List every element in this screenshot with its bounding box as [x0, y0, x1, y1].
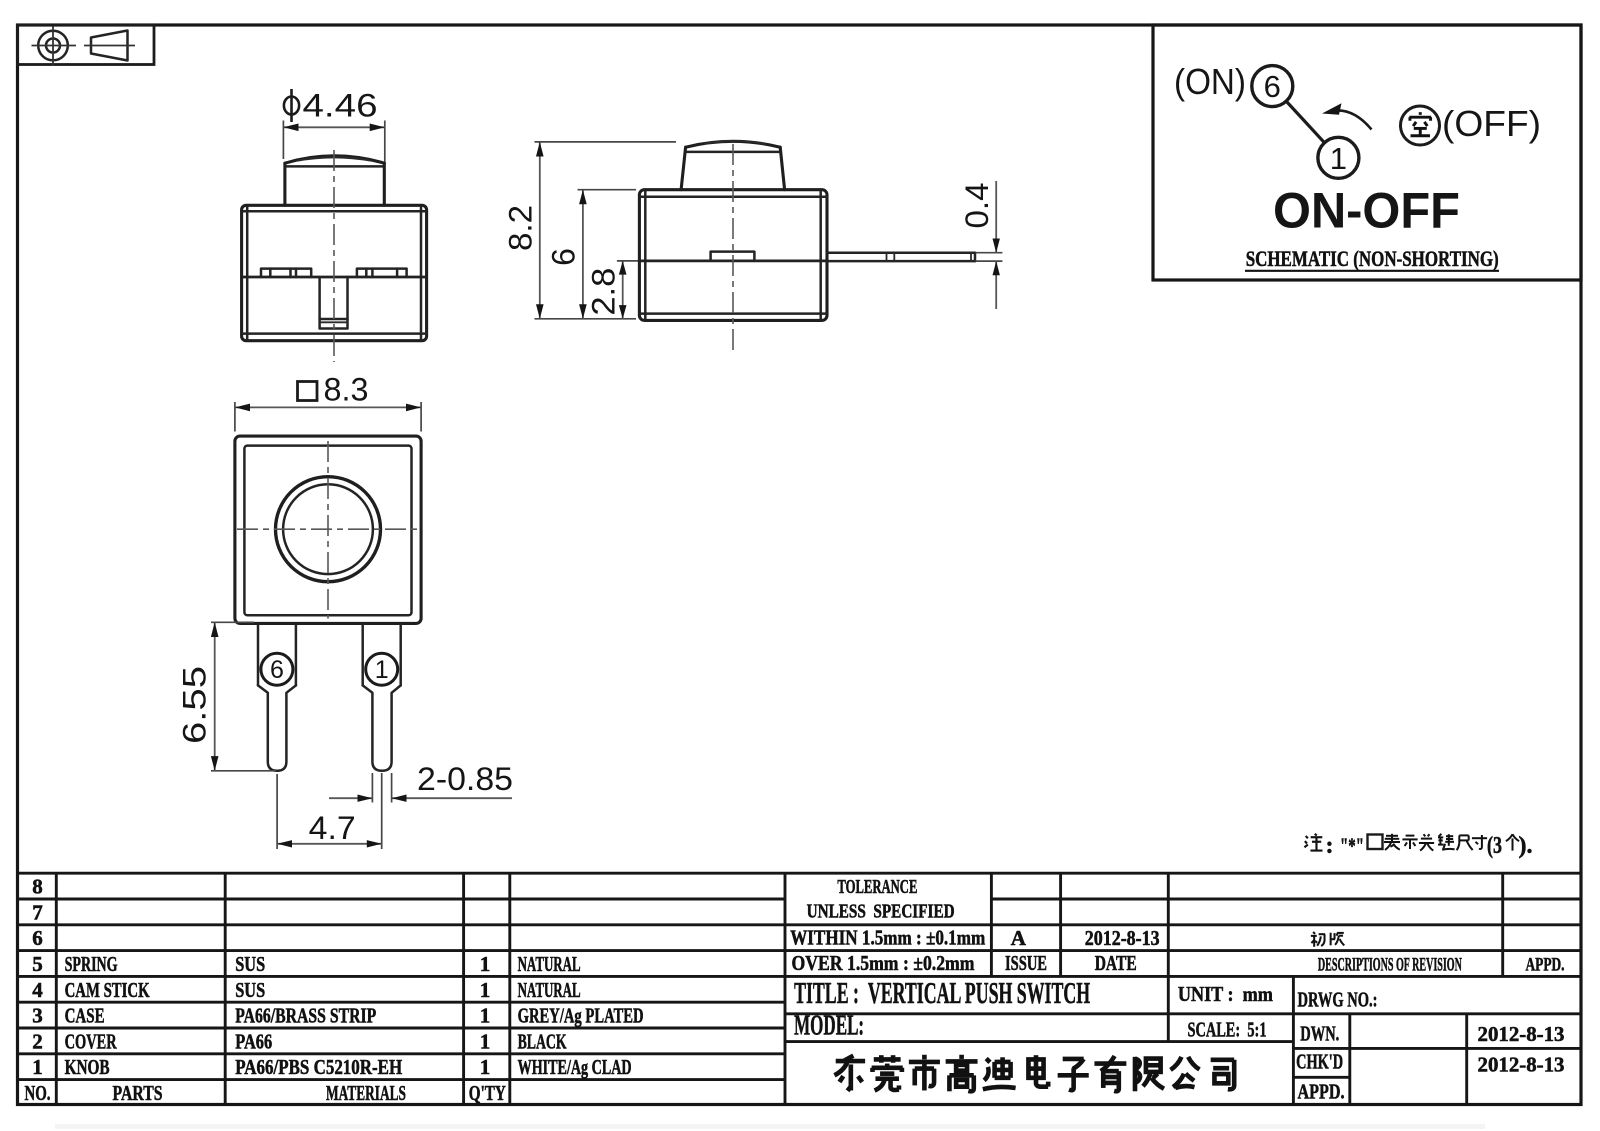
svg-text:CAM STICK: CAM STICK: [65, 978, 150, 1002]
svg-text:8.2: 8.2: [503, 205, 539, 251]
svg-text:MATERIALS: MATERIALS: [326, 1081, 406, 1105]
svg-text:1: 1: [480, 1055, 491, 1079]
svg-text:DESCRIPTIONS OF REVISION: DESCRIPTIONS OF REVISION: [1318, 955, 1462, 976]
svg-text:APPD.: APPD.: [1526, 955, 1565, 976]
svg-text:PA66/PBS C5210R-EH: PA66/PBS C5210R-EH: [235, 1055, 402, 1079]
svg-text:A: A: [1011, 926, 1027, 950]
svg-text:1: 1: [480, 952, 491, 976]
svg-text:GREY/Ag PLATED: GREY/Ag PLATED: [518, 1004, 644, 1028]
svg-text:6: 6: [270, 656, 284, 684]
svg-text:2: 2: [32, 1029, 43, 1053]
svg-text:6: 6: [1264, 69, 1281, 104]
svg-text:NATURAL: NATURAL: [518, 952, 581, 976]
svg-text:4.7: 4.7: [309, 810, 356, 846]
svg-text:PARTS: PARTS: [113, 1081, 163, 1105]
svg-text:UNIT : mm: UNIT : mm: [1178, 982, 1273, 1006]
svg-text:ON-OFF: ON-OFF: [1273, 183, 1460, 239]
svg-text:8: 8: [32, 875, 43, 899]
svg-text:APPD.: APPD.: [1298, 1080, 1345, 1104]
svg-text:2.8: 2.8: [586, 268, 622, 316]
svg-text:ISSUE: ISSUE: [1005, 951, 1047, 975]
svg-text:1: 1: [375, 656, 389, 684]
svg-text:SCALE: 5:1: SCALE: 5:1: [1188, 1018, 1267, 1042]
svg-text:6: 6: [32, 926, 43, 950]
svg-text:(OFF): (OFF): [1442, 103, 1541, 144]
svg-text:2012-8-13: 2012-8-13: [1478, 1022, 1565, 1046]
svg-text:PA66/BRASS STRIP: PA66/BRASS STRIP: [235, 1004, 376, 1028]
svg-text:"*": "*": [1340, 833, 1364, 858]
svg-text:(3: (3: [1487, 833, 1502, 859]
svg-text:1: 1: [480, 1004, 491, 1028]
svg-text:MODEL:: MODEL:: [794, 1010, 864, 1042]
svg-text:CASE: CASE: [65, 1004, 105, 1028]
svg-text:8.3: 8.3: [324, 372, 369, 408]
svg-text:2012-8-13: 2012-8-13: [1478, 1053, 1565, 1077]
svg-text:WHITE/Ag CLAD: WHITE/Ag CLAD: [518, 1055, 632, 1079]
svg-text::: :: [1326, 833, 1334, 859]
svg-text:0.4: 0.4: [959, 183, 995, 229]
svg-text:TITLE : VERTICAL PUSH SWITCH: TITLE : VERTICAL PUSH SWITCH: [794, 975, 1090, 1010]
svg-text:NO.: NO.: [25, 1081, 51, 1105]
svg-text:OVER 1.5mm : ±0.2mm: OVER 1.5mm : ±0.2mm: [792, 951, 975, 975]
svg-text:BLACK: BLACK: [518, 1029, 567, 1053]
svg-text:1: 1: [1330, 141, 1347, 176]
svg-text:3: 3: [32, 1004, 43, 1028]
svg-text:6: 6: [546, 248, 582, 266]
svg-text:PA66: PA66: [235, 1029, 272, 1053]
svg-text:2012-8-13: 2012-8-13: [1085, 926, 1160, 950]
svg-text:TOLERANCE: TOLERANCE: [837, 876, 917, 898]
svg-text:SPRING: SPRING: [65, 952, 118, 976]
svg-text:(ON): (ON): [1174, 61, 1246, 102]
svg-text:5: 5: [32, 952, 43, 976]
svg-text:).: ).: [1519, 833, 1533, 859]
svg-text:4.46: 4.46: [303, 88, 378, 124]
svg-text:DWN.: DWN.: [1300, 1022, 1339, 1046]
svg-text:CHK'D: CHK'D: [1296, 1050, 1343, 1074]
svg-text:DATE: DATE: [1095, 951, 1137, 975]
svg-text:KNOB: KNOB: [65, 1055, 110, 1079]
svg-text:4: 4: [32, 978, 43, 1002]
svg-text:SCHEMATIC (NON-SHORTING): SCHEMATIC (NON-SHORTING): [1246, 246, 1499, 271]
svg-text:7: 7: [32, 900, 43, 924]
svg-text:SUS: SUS: [235, 978, 265, 1002]
svg-text:2-0.85: 2-0.85: [417, 761, 513, 797]
svg-text:DRWG NO.:: DRWG NO.:: [1298, 988, 1378, 1012]
svg-text:WITHIN 1.5mm : ±0.1mm: WITHIN 1.5mm : ±0.1mm: [790, 926, 985, 950]
svg-text:SUS: SUS: [235, 952, 265, 976]
svg-text:1: 1: [480, 978, 491, 1002]
svg-text:COVER: COVER: [65, 1029, 118, 1053]
svg-text:Q'TY: Q'TY: [469, 1081, 506, 1105]
svg-text:6.55: 6.55: [177, 666, 213, 744]
svg-text:NATURAL: NATURAL: [518, 978, 581, 1002]
svg-text:1: 1: [32, 1055, 43, 1079]
svg-text:UNLESS SPECIFIED: UNLESS SPECIFIED: [807, 901, 955, 923]
svg-text:1: 1: [480, 1029, 491, 1053]
